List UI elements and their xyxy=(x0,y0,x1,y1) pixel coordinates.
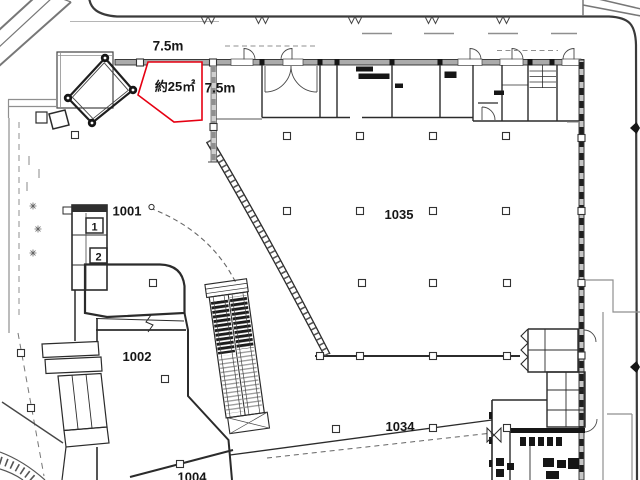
partition-storage-block xyxy=(521,329,578,372)
column-grid xyxy=(18,132,511,433)
stairs-lower-left xyxy=(42,342,109,480)
stair-room-treads xyxy=(530,65,557,88)
toilet-block xyxy=(487,372,585,480)
void-dashed-line xyxy=(150,208,236,283)
area-label: 約25㎡ xyxy=(155,79,195,94)
bush-icon xyxy=(30,203,37,210)
road-marker-icon xyxy=(630,361,640,373)
room-label-1034: 1034 xyxy=(386,419,416,434)
highlight-area-group xyxy=(138,62,262,162)
floor-plan-page: 7.5m 7.5m 約25㎡ 1001 1002 1004 1034 1035 … xyxy=(0,0,640,480)
dimension-label-top: 7.5m xyxy=(153,39,184,54)
service-yard xyxy=(567,122,640,480)
room-label-1004: 1004 xyxy=(178,470,208,480)
room-label-1002: 1002 xyxy=(123,349,152,364)
door-symbol xyxy=(494,428,501,442)
adjacent-building-top-right xyxy=(583,0,640,16)
marker-label-1: 1 xyxy=(91,222,97,234)
room-label-1001: 1001 xyxy=(113,204,142,219)
road-marker-icon xyxy=(630,122,640,134)
right-curtain-wall xyxy=(578,60,597,480)
top-room-band xyxy=(262,65,583,121)
equipment-marks xyxy=(356,67,504,96)
room-label-1035: 1035 xyxy=(385,207,414,222)
marker-label-2: 2 xyxy=(95,252,101,264)
left-sidewalk xyxy=(0,118,63,480)
floor-plan-drawing: 7.5m 7.5m 約25㎡ 1001 1002 1004 1034 1035 … xyxy=(0,0,640,480)
bush-icon xyxy=(35,226,42,233)
dimension-label-right: 7.5m xyxy=(205,81,236,96)
escalator xyxy=(205,279,270,435)
vestibule-doors xyxy=(265,66,317,92)
bush-icon xyxy=(30,250,37,257)
toilet-fixtures xyxy=(496,437,579,479)
